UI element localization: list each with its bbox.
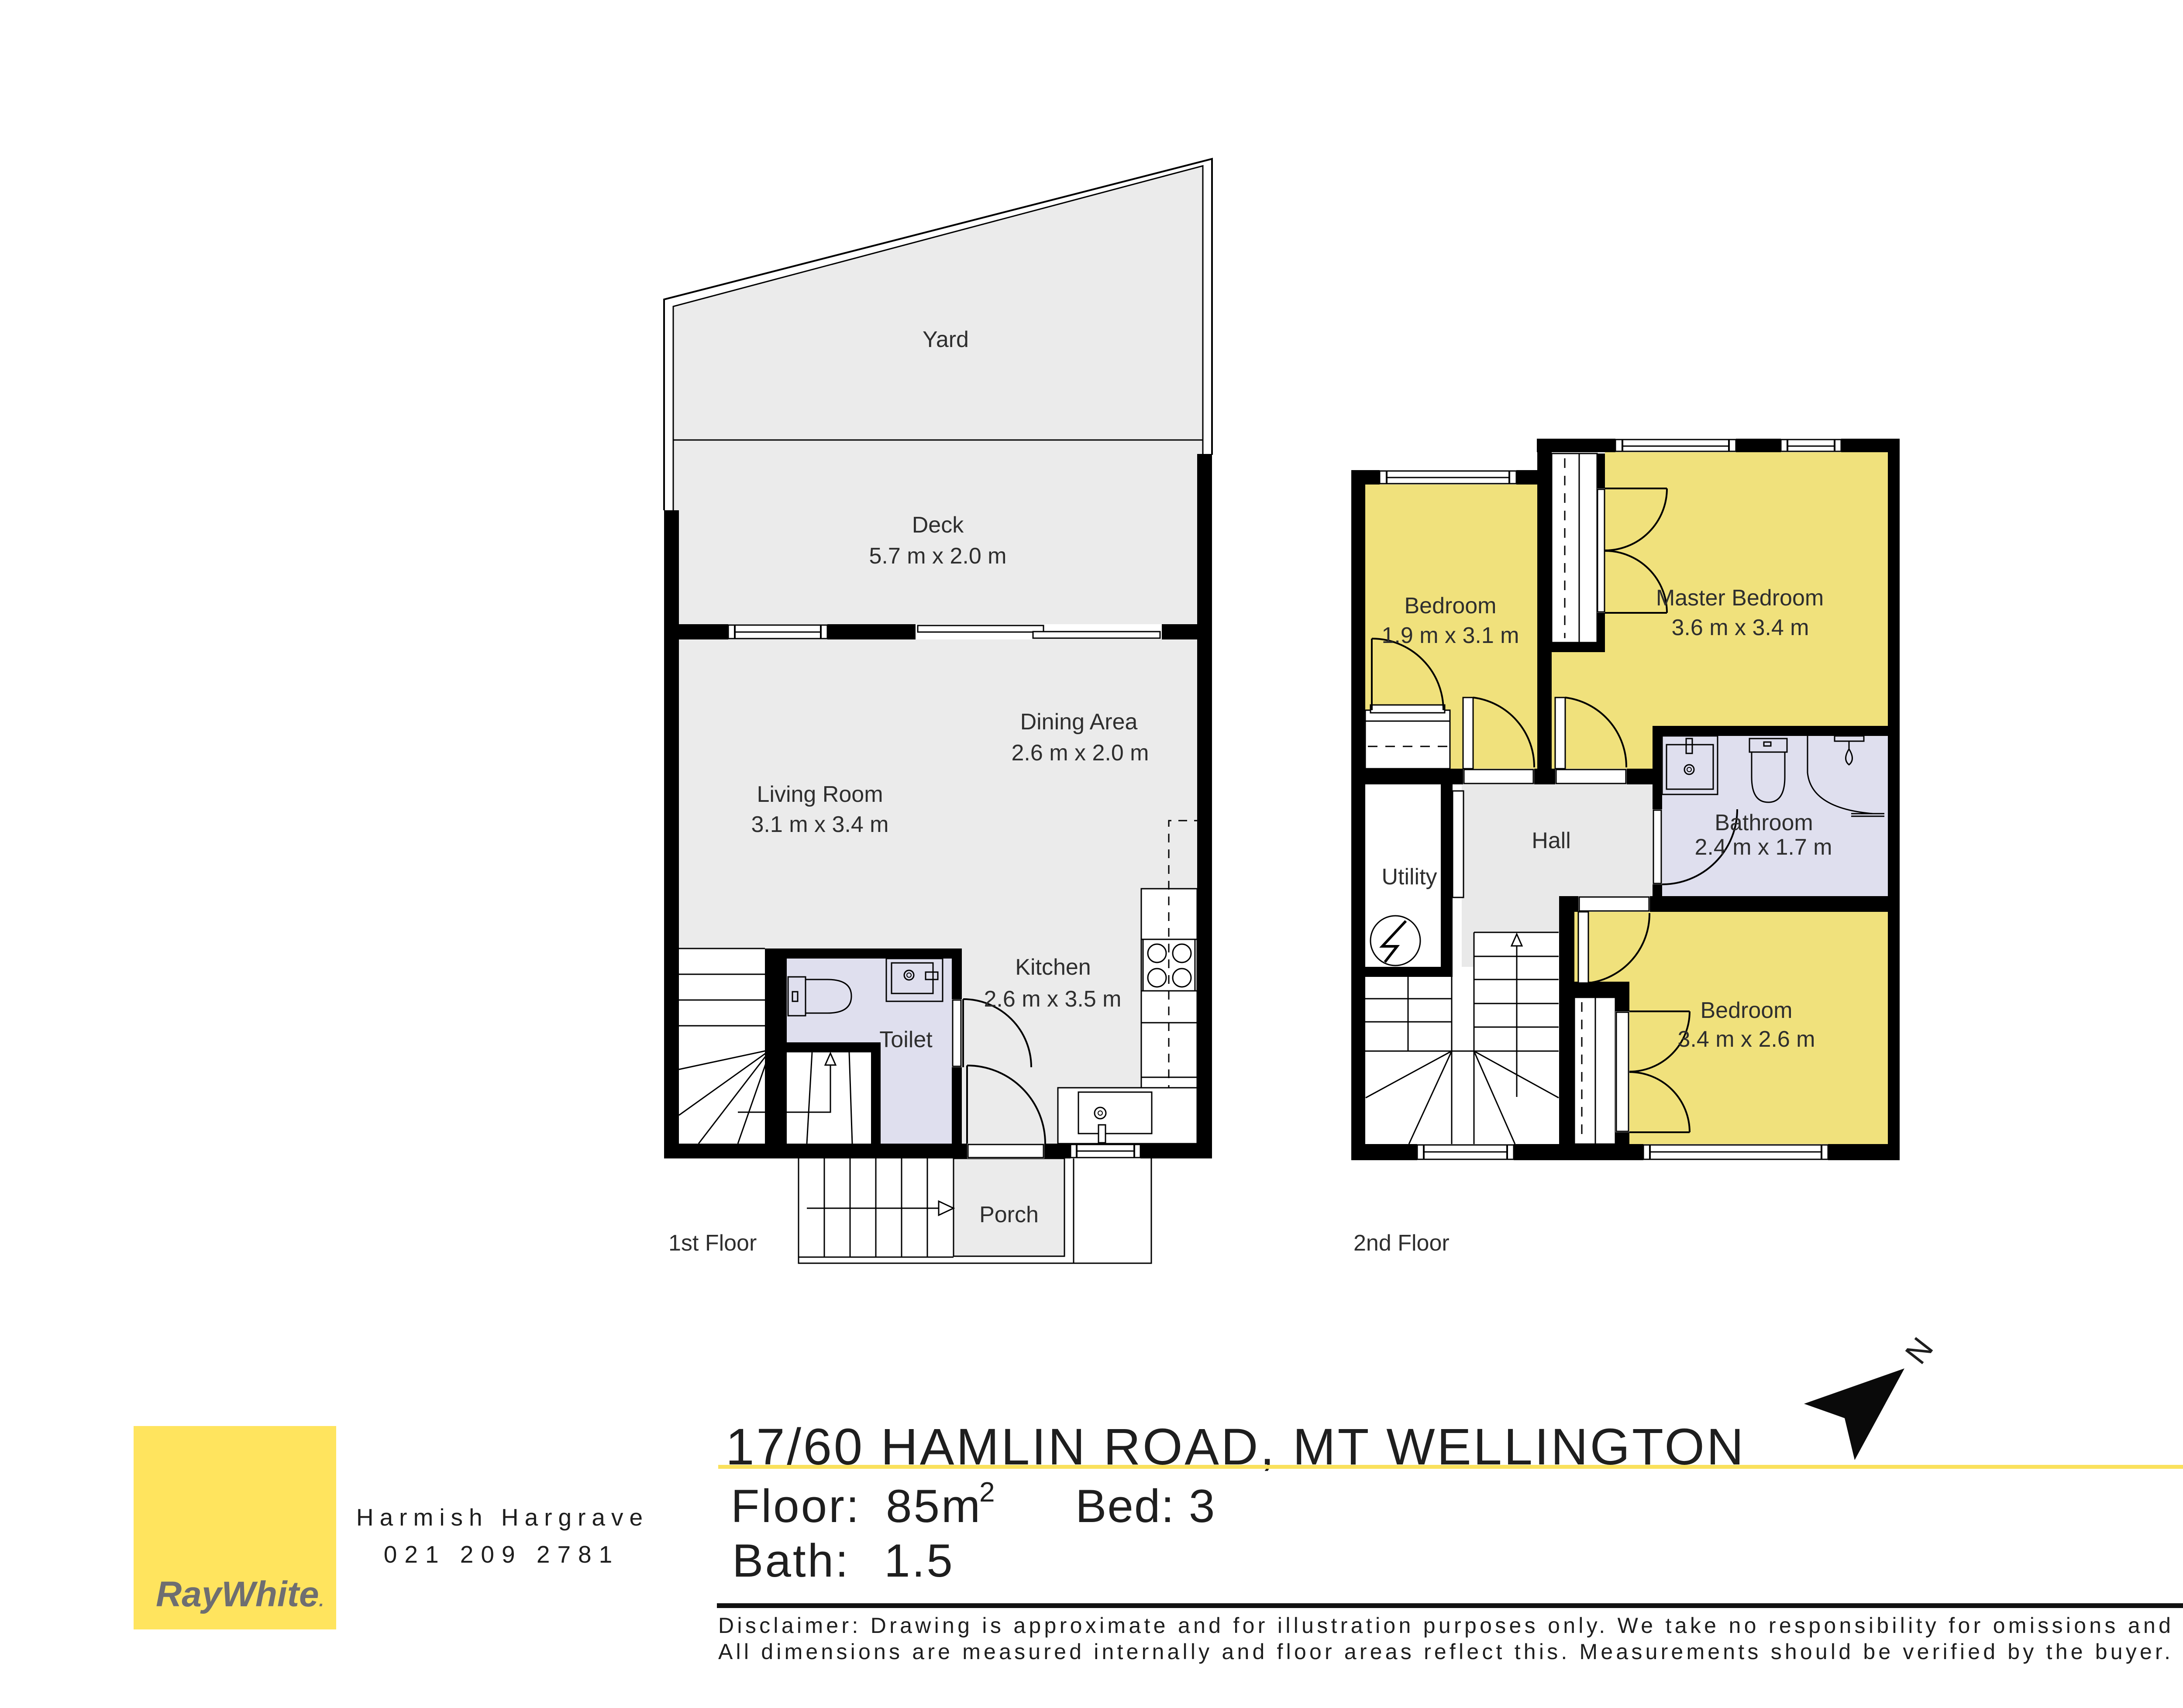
svg-text:Kitchen: Kitchen (1015, 955, 1091, 980)
svg-text:3.4 m x 2.6 m: 3.4 m x 2.6 m (1678, 1027, 1815, 1052)
svg-text:Bedroom: Bedroom (1405, 593, 1497, 619)
svg-text:2.4 m x 1.7 m: 2.4 m x 1.7 m (1695, 835, 1832, 860)
svg-text:Utility: Utility (1381, 864, 1437, 890)
svg-text:Harmish Hargrave: Harmish Hargrave (356, 1504, 649, 1531)
svg-text:5.7 m x 2.0 m: 5.7 m x 2.0 m (869, 543, 1007, 569)
svg-text:Disclaimer: Drawing is approxi: Disclaimer: Drawing is approximate and f… (718, 1613, 2183, 1638)
svg-text:2.6 m x 2.0 m: 2.6 m x 2.0 m (1012, 740, 1149, 766)
svg-text:Floor:: Floor: (731, 1480, 861, 1532)
svg-text:1st Floor: 1st Floor (668, 1230, 757, 1256)
svg-text:RayWhite.: RayWhite. (156, 1574, 324, 1614)
svg-text:1.5: 1.5 (884, 1534, 954, 1587)
svg-text:3.1 m x 3.4 m: 3.1 m x 3.4 m (751, 812, 889, 837)
svg-text:1.9 m x 3.1 m: 1.9 m x 3.1 m (1382, 623, 1519, 648)
svg-text:Bath:: Bath: (732, 1534, 850, 1587)
svg-text:85m: 85m (886, 1480, 982, 1532)
svg-text:Deck: Deck (912, 512, 964, 538)
svg-text:Toilet: Toilet (879, 1027, 933, 1052)
svg-text:021 209 2781: 021 209 2781 (384, 1541, 620, 1568)
svg-text:Living Room: Living Room (757, 782, 883, 807)
svg-text:2nd Floor: 2nd Floor (1353, 1230, 1450, 1256)
svg-text:Bathroom: Bathroom (1715, 810, 1813, 835)
svg-text:Dining Area: Dining Area (1020, 709, 1138, 735)
svg-text:Hall: Hall (1532, 828, 1571, 853)
svg-text:Bedroom: Bedroom (1701, 998, 1793, 1023)
svg-text:2.6 m x 3.5 m: 2.6 m x 3.5 m (984, 986, 1122, 1012)
svg-text:Bed: 3: Bed: 3 (1075, 1480, 1215, 1532)
svg-text:Yard: Yard (923, 327, 969, 352)
svg-text:Porch: Porch (979, 1202, 1039, 1227)
svg-text:2: 2 (979, 1476, 995, 1508)
svg-text:3.6 m x 3.4 m: 3.6 m x 3.4 m (1672, 615, 1809, 640)
svg-text:Master Bedroom: Master Bedroom (1656, 585, 1824, 611)
svg-text:All dimensions are measured in: All dimensions are measured internally a… (718, 1639, 2173, 1664)
